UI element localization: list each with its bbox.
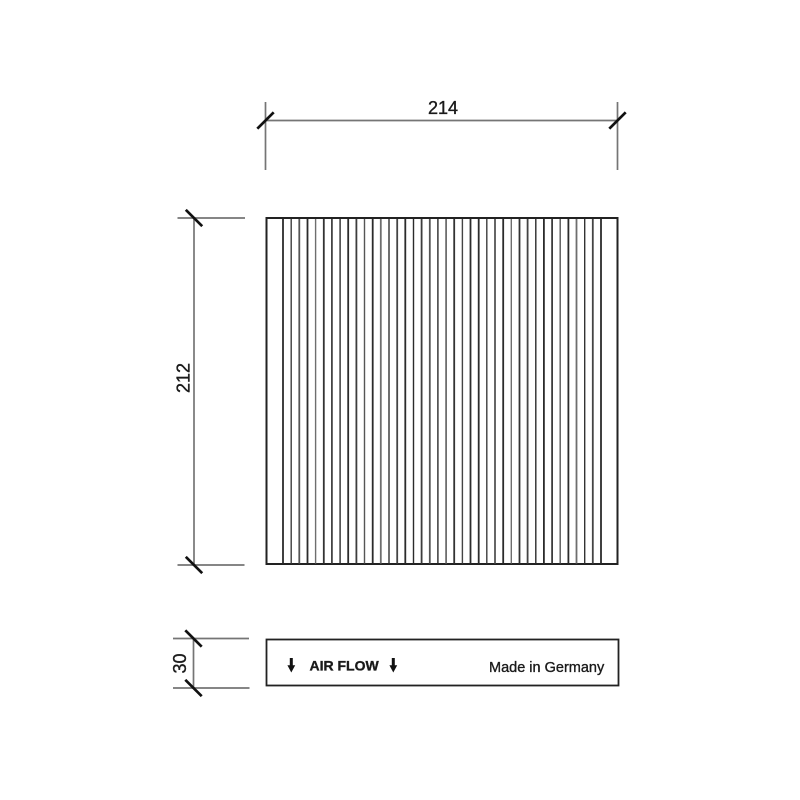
svg-text:AIR FLOW: AIR FLOW [310,657,380,673]
svg-text:Made in Germany: Made in Germany [489,660,605,676]
svg-text:214: 214 [428,98,458,118]
svg-text:212: 212 [174,363,194,393]
svg-text:30: 30 [170,653,190,673]
